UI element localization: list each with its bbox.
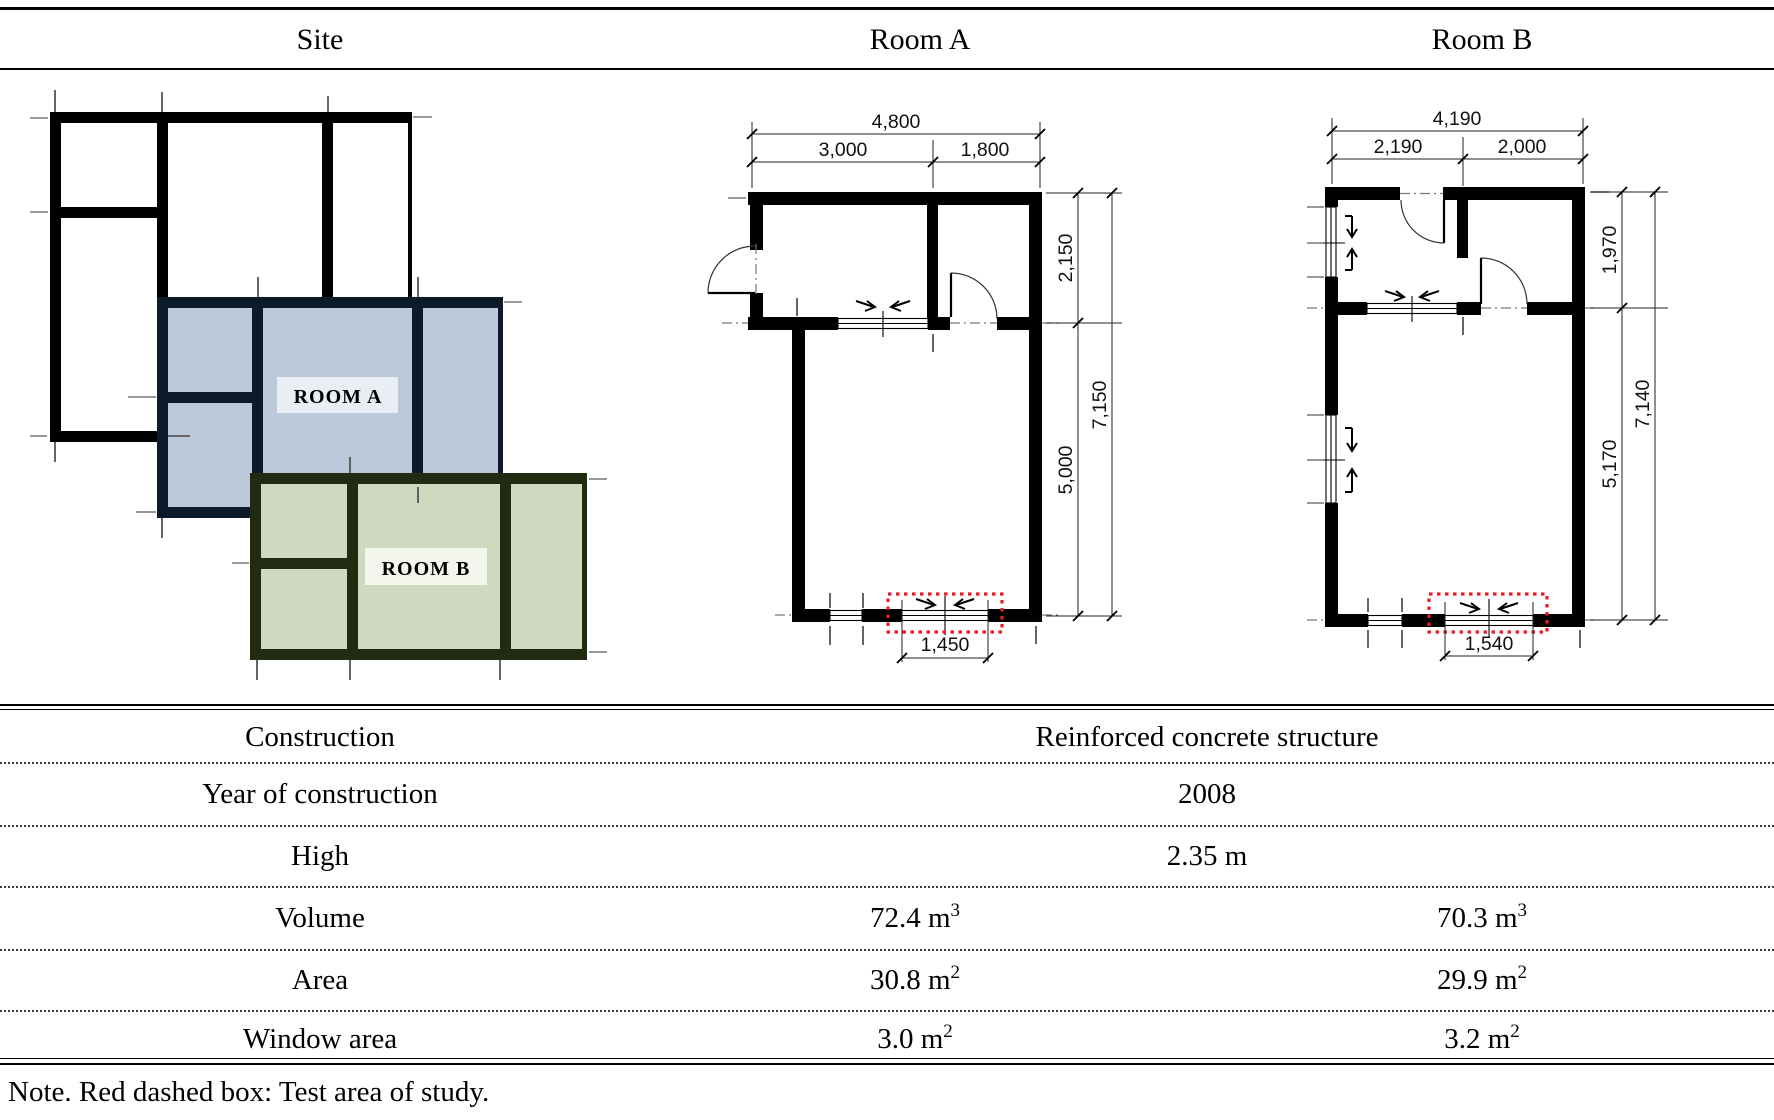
dim-room-a-right-width: 1,800 (961, 139, 1010, 161)
table-row: Construction Reinforced concrete structu… (0, 712, 1774, 764)
spec-table: Construction Reinforced concrete structu… (0, 712, 1774, 1067)
dim-room-b-left-width: 2,190 (1374, 136, 1423, 158)
dim-room-b-lower-height: 5,170 (1599, 439, 1621, 488)
dim-room-a-upper-height: 2,150 (1055, 233, 1077, 282)
table-row: High 2.35 m (0, 827, 1774, 888)
row-label-year: Year of construction (0, 778, 640, 811)
dim-room-b-total-height: 7,140 (1632, 379, 1654, 428)
room-b-windows (1318, 207, 1533, 638)
row-value-area-room-b: 29.9 m2 (1190, 964, 1774, 997)
row-value-volume-room-a: 72.4 m3 (640, 902, 1190, 935)
dim-room-a-lower-height: 5,000 (1055, 445, 1077, 494)
row-label-area: Area (0, 964, 640, 997)
row-value-area-room-a: 30.8 m2 (640, 964, 1190, 997)
row-label-window-area: Window area (0, 1023, 640, 1056)
figure-page: Site Room A Room B (0, 0, 1774, 1120)
site-room-a-label: ROOM A (294, 386, 383, 408)
row-label-construction: Construction (0, 721, 640, 754)
room-b-window-arrow-icons (1345, 216, 1518, 613)
row-value-window-area-room-a: 3.0 m2 (640, 1023, 1190, 1056)
row-value-volume-room-b: 70.3 m3 (1190, 902, 1774, 935)
row-label-high: High (0, 840, 640, 873)
figure-note: Note. Red dashed box: Test area of study… (8, 1076, 489, 1109)
row-value-window-area-room-b: 3.2 m2 (1190, 1023, 1774, 1056)
dim-room-b-upper-height: 1,970 (1599, 225, 1621, 274)
room-b-floor-plan: 4,190 2,190 2,000 1,970 5,170 7,140 1,54… (1307, 108, 1668, 661)
dim-room-b-total-width: 4,190 (1433, 108, 1482, 130)
site-unit-room-b: ROOM B (232, 473, 607, 680)
dim-room-a-total-width: 4,800 (872, 111, 921, 133)
dim-room-a-left-width: 3,000 (819, 139, 868, 161)
table-row: Year of construction 2008 (0, 764, 1774, 827)
table-row: Area 30.8 m2 29.9 m2 (0, 951, 1774, 1012)
row-value-high: 2.35 m (640, 840, 1774, 873)
dim-room-a-window-width: 1,450 (921, 634, 970, 656)
site-plan: ROOM A (30, 90, 607, 680)
site-room-b-label: ROOM B (382, 558, 471, 580)
room-a-window-arrow-icons (856, 301, 974, 609)
room-b-test-area-box (1429, 594, 1547, 632)
row-value-year: 2008 (640, 778, 1774, 811)
table-row: Volume 72.4 m3 70.3 m3 (0, 888, 1774, 951)
dim-room-a-total-height: 7,150 (1089, 380, 1111, 429)
dim-room-b-window-width: 1,540 (1465, 633, 1514, 655)
table-row: Window area 3.0 m2 3.2 m2 (0, 1012, 1774, 1067)
row-label-volume: Volume (0, 902, 640, 935)
row-value-construction: Reinforced concrete structure (640, 721, 1774, 754)
room-a-floor-plan: 4,800 3,000 1,800 2,150 5,000 7,150 1,45… (708, 111, 1122, 663)
floor-plans-drawing: ROOM A (0, 0, 1774, 710)
dim-room-b-right-width: 2,000 (1498, 136, 1547, 158)
room-a-windows (830, 311, 988, 635)
